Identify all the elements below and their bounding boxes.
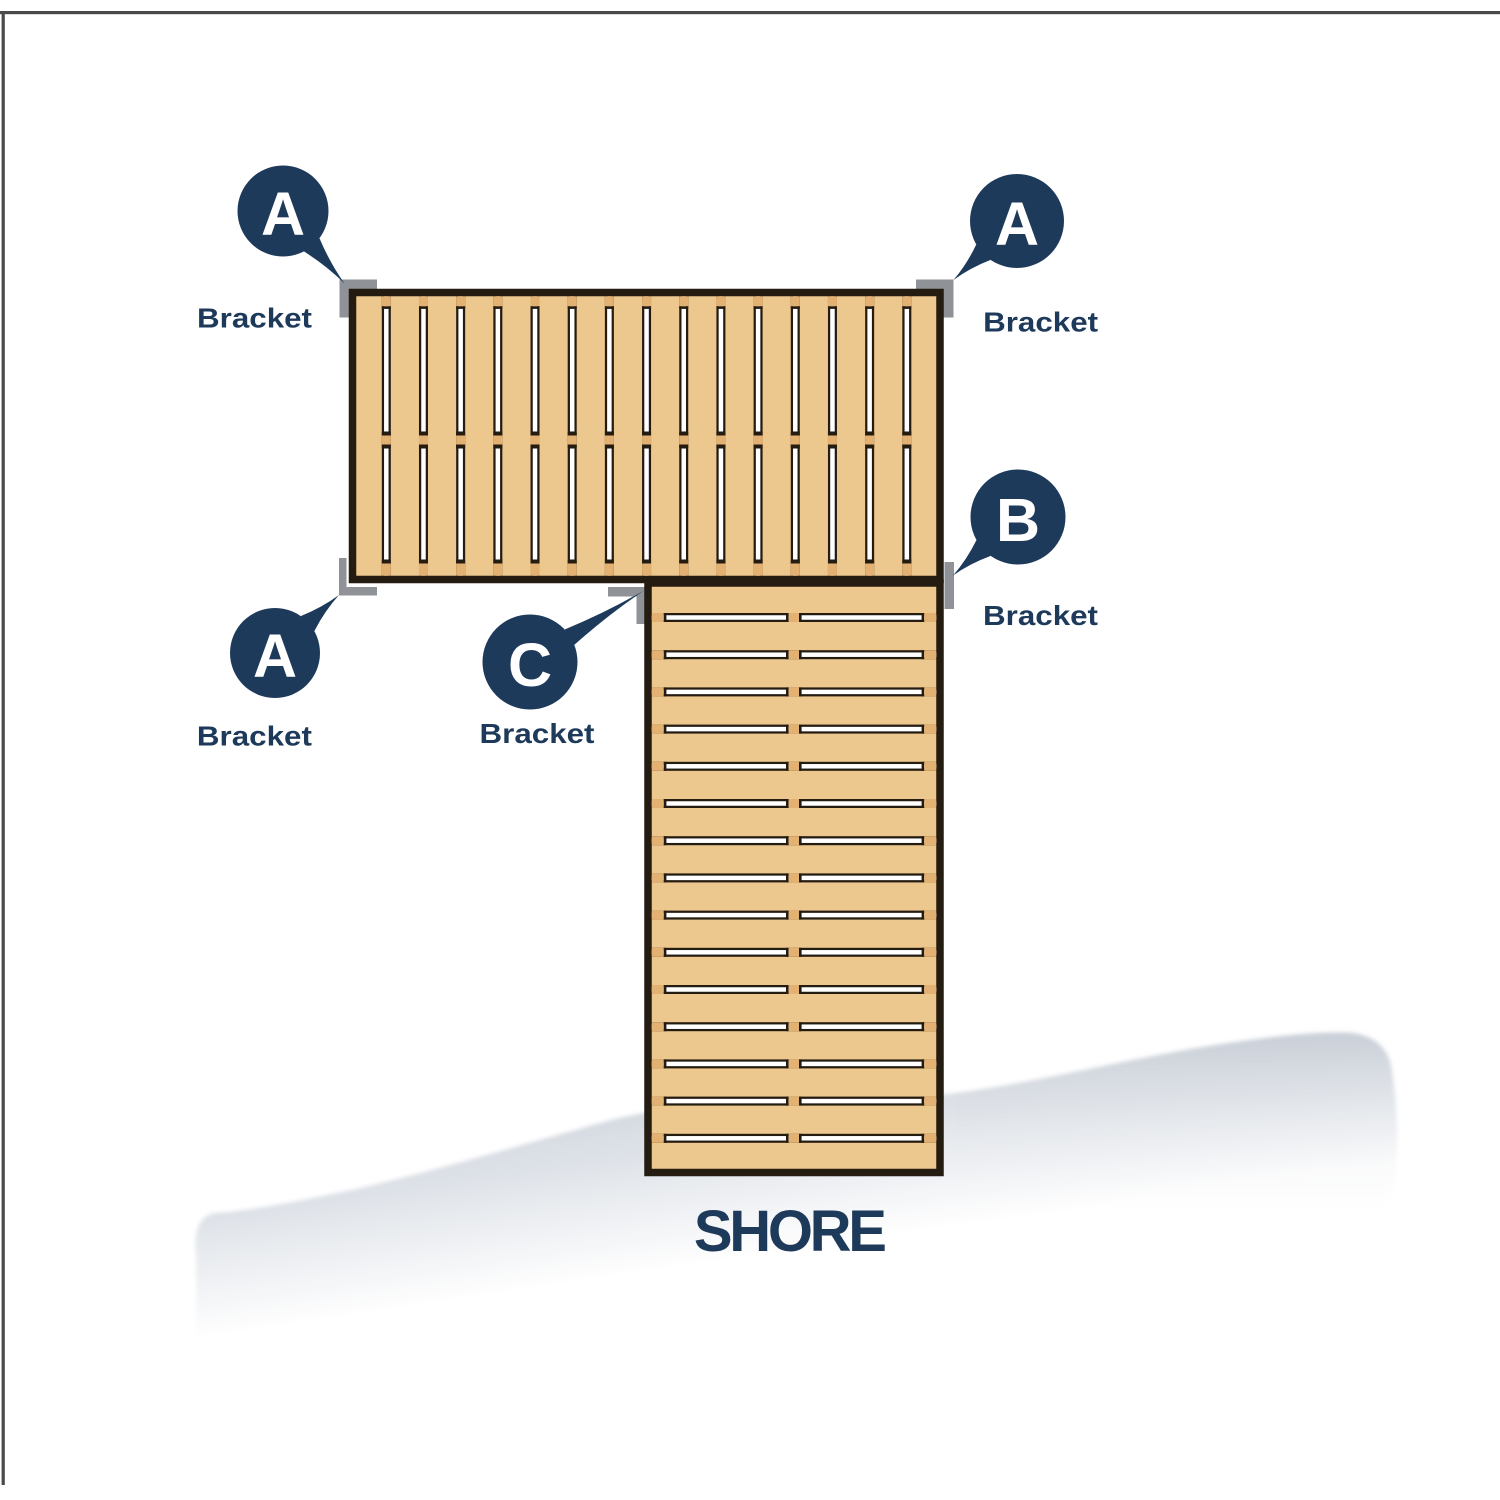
svg-text:SHORE: SHORE	[694, 1199, 887, 1264]
svg-text:A: A	[261, 180, 305, 248]
svg-text:Bracket: Bracket	[983, 600, 1098, 631]
svg-text:Bracket: Bracket	[480, 718, 595, 749]
svg-text:Bracket: Bracket	[197, 303, 312, 334]
svg-text:B: B	[996, 486, 1040, 554]
svg-text:A: A	[995, 190, 1039, 258]
svg-text:C: C	[508, 631, 552, 699]
svg-text:Bracket: Bracket	[983, 306, 1098, 337]
svg-text:A: A	[253, 622, 297, 690]
svg-text:Bracket: Bracket	[197, 720, 312, 751]
